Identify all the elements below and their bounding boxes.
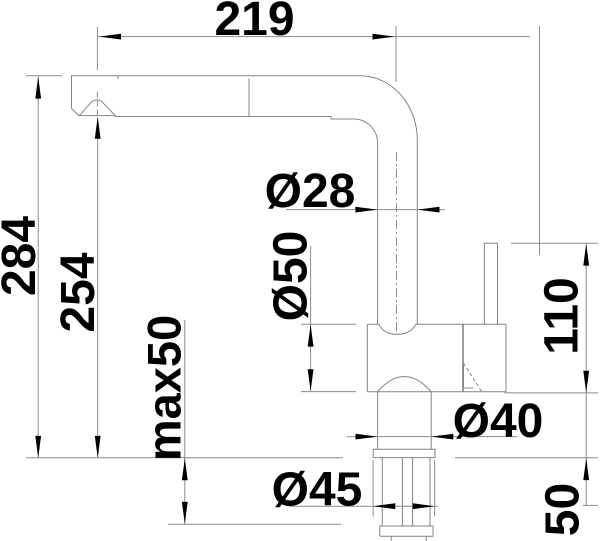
svg-text:max50: max50 [138,315,191,461]
svg-text:284: 284 [0,216,46,296]
svg-text:50: 50 [537,483,590,536]
svg-text:Ø45: Ø45 [272,464,363,517]
svg-text:110: 110 [536,277,589,354]
svg-text:Ø28: Ø28 [265,165,356,218]
svg-text:254: 254 [52,252,105,332]
svg-text:219: 219 [214,0,294,46]
svg-text:Ø40: Ø40 [453,395,544,448]
svg-text:Ø50: Ø50 [265,231,318,322]
